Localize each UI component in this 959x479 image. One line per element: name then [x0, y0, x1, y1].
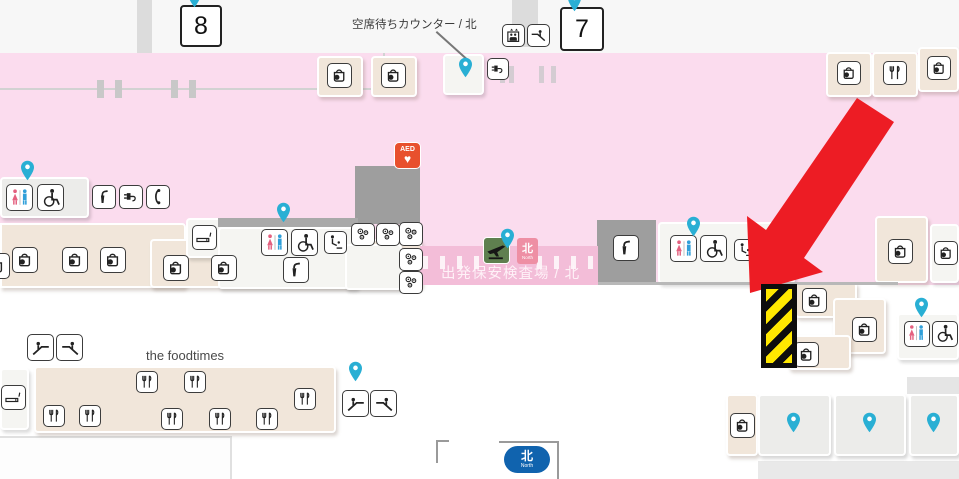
baby-care-icon	[324, 231, 347, 254]
security-lane-mark	[423, 256, 428, 269]
wheelchair-icon	[291, 229, 318, 256]
escalator-down-icon	[56, 334, 83, 361]
highlight-arrow-icon	[720, 98, 910, 298]
pillar	[355, 166, 420, 224]
map-pin[interactable]	[787, 412, 800, 433]
restaurant-icon	[161, 408, 183, 430]
restaurant-icon	[43, 405, 65, 427]
door-mark	[97, 80, 104, 98]
restroom-icon	[6, 184, 33, 211]
airport-terminal-map: { "gates": [ { "number": "8" }, { "numbe…	[0, 0, 959, 479]
escalator-down-icon	[370, 390, 397, 417]
restaurant-icon	[79, 405, 101, 427]
wall-band	[907, 377, 959, 394]
power-outlet-icon	[119, 185, 143, 209]
vending-icon	[376, 223, 400, 246]
shop-icon	[211, 255, 237, 281]
door-mark	[551, 66, 556, 83]
shop-icon	[794, 342, 819, 367]
north-badge-security: 北 North	[517, 238, 538, 264]
map-pin[interactable]	[21, 160, 34, 181]
shop-icon	[837, 61, 861, 85]
vending-icon	[399, 248, 423, 271]
map-pin[interactable]	[915, 297, 928, 318]
escalator-up-icon	[27, 334, 54, 361]
north-kanji: 北	[522, 243, 533, 255]
wall-corner	[436, 440, 438, 463]
map-pin[interactable]	[568, 0, 581, 12]
map-pin[interactable]	[687, 216, 700, 237]
drinking-fountain-icon	[283, 257, 309, 283]
drinking-fountain-icon	[92, 185, 116, 209]
wall-band	[758, 461, 959, 479]
hazard-marker	[761, 284, 797, 368]
door-mark	[509, 66, 514, 83]
vending-icon	[351, 223, 375, 246]
map-pin[interactable]	[459, 57, 472, 78]
restroom-icon	[670, 235, 697, 262]
security-lane-mark	[588, 256, 593, 269]
telephone-icon	[146, 185, 170, 209]
vending-block	[345, 244, 402, 290]
shop-icon	[327, 63, 352, 88]
gate-number: 8	[194, 12, 208, 41]
smoking-icon	[1, 385, 26, 410]
escalator-up-icon	[342, 390, 369, 417]
restaurant-icon	[184, 371, 206, 393]
map-pin[interactable]	[863, 412, 876, 433]
map-pin[interactable]	[277, 202, 290, 223]
door-mark	[189, 80, 196, 98]
restaurant-icon	[136, 371, 158, 393]
north-en: North	[522, 255, 533, 260]
shop-icon	[852, 317, 877, 342]
power-outlet-icon	[487, 58, 509, 80]
restroom-icon	[904, 321, 930, 347]
vending-icon	[399, 271, 423, 294]
gate-7-marker[interactable]: 7	[560, 7, 604, 51]
door-mark	[539, 66, 544, 83]
drinking-fountain-icon	[613, 235, 639, 261]
wheelchair-icon	[932, 321, 958, 347]
map-pin[interactable]	[188, 0, 201, 8]
shop-icon	[62, 247, 88, 273]
shop-icon	[0, 253, 10, 279]
wheelchair-icon	[37, 184, 64, 211]
map-pin[interactable]	[927, 412, 940, 433]
wall-corner	[436, 440, 449, 442]
aed-badge: AED ♥	[394, 142, 421, 169]
restroom-icon	[261, 229, 288, 256]
shop-icon	[100, 247, 126, 273]
restaurant-icon	[294, 388, 316, 410]
standby-counter-label: 空席待ちカウンター / 北	[352, 16, 477, 32]
restaurant-icon	[256, 408, 278, 430]
shop-icon	[163, 255, 189, 281]
map-pin[interactable]	[349, 361, 362, 382]
gate-8-marker[interactable]: 8	[180, 5, 222, 47]
shop-icon	[730, 413, 755, 438]
gate-number: 7	[575, 15, 589, 44]
security-checkpoint-label: 出発保安検査場 / 北	[441, 262, 580, 283]
foodcourt-label: the foodtimes	[146, 348, 224, 363]
shop-icon	[12, 247, 38, 273]
escalator-down-icon	[527, 24, 550, 47]
shop-icon	[927, 56, 951, 80]
north-en: North	[521, 463, 533, 469]
shop-icon	[934, 241, 958, 265]
vending-icon	[399, 222, 423, 246]
map-pin[interactable]	[501, 228, 514, 249]
elevator-icon	[502, 24, 525, 47]
north-badge-main: 北 North	[504, 446, 550, 473]
wall-band	[137, 0, 152, 53]
restaurant-icon	[883, 61, 907, 85]
shop-icon	[381, 63, 406, 88]
restaurant-icon	[209, 408, 231, 430]
heart-icon: ♥	[404, 153, 411, 165]
door-mark	[171, 80, 178, 98]
room-outline	[0, 436, 232, 479]
north-kanji: 北	[521, 450, 533, 463]
smoking-icon	[192, 225, 217, 250]
door-mark	[115, 80, 122, 98]
